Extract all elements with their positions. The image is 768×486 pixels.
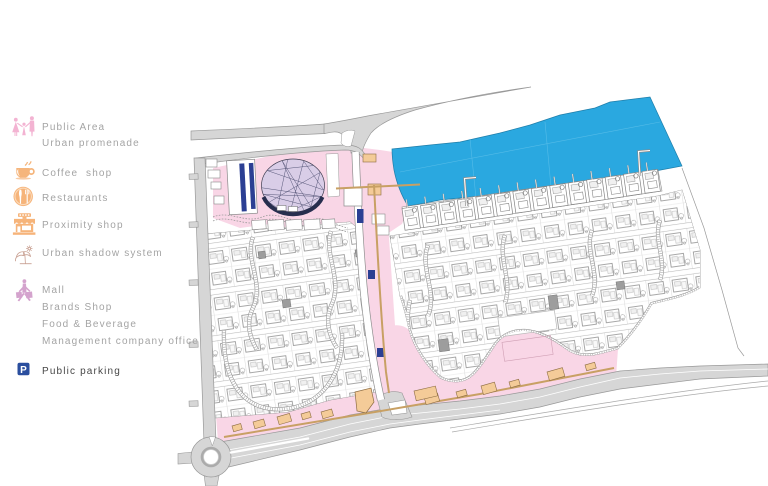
svg-text:P: P <box>20 365 27 376</box>
